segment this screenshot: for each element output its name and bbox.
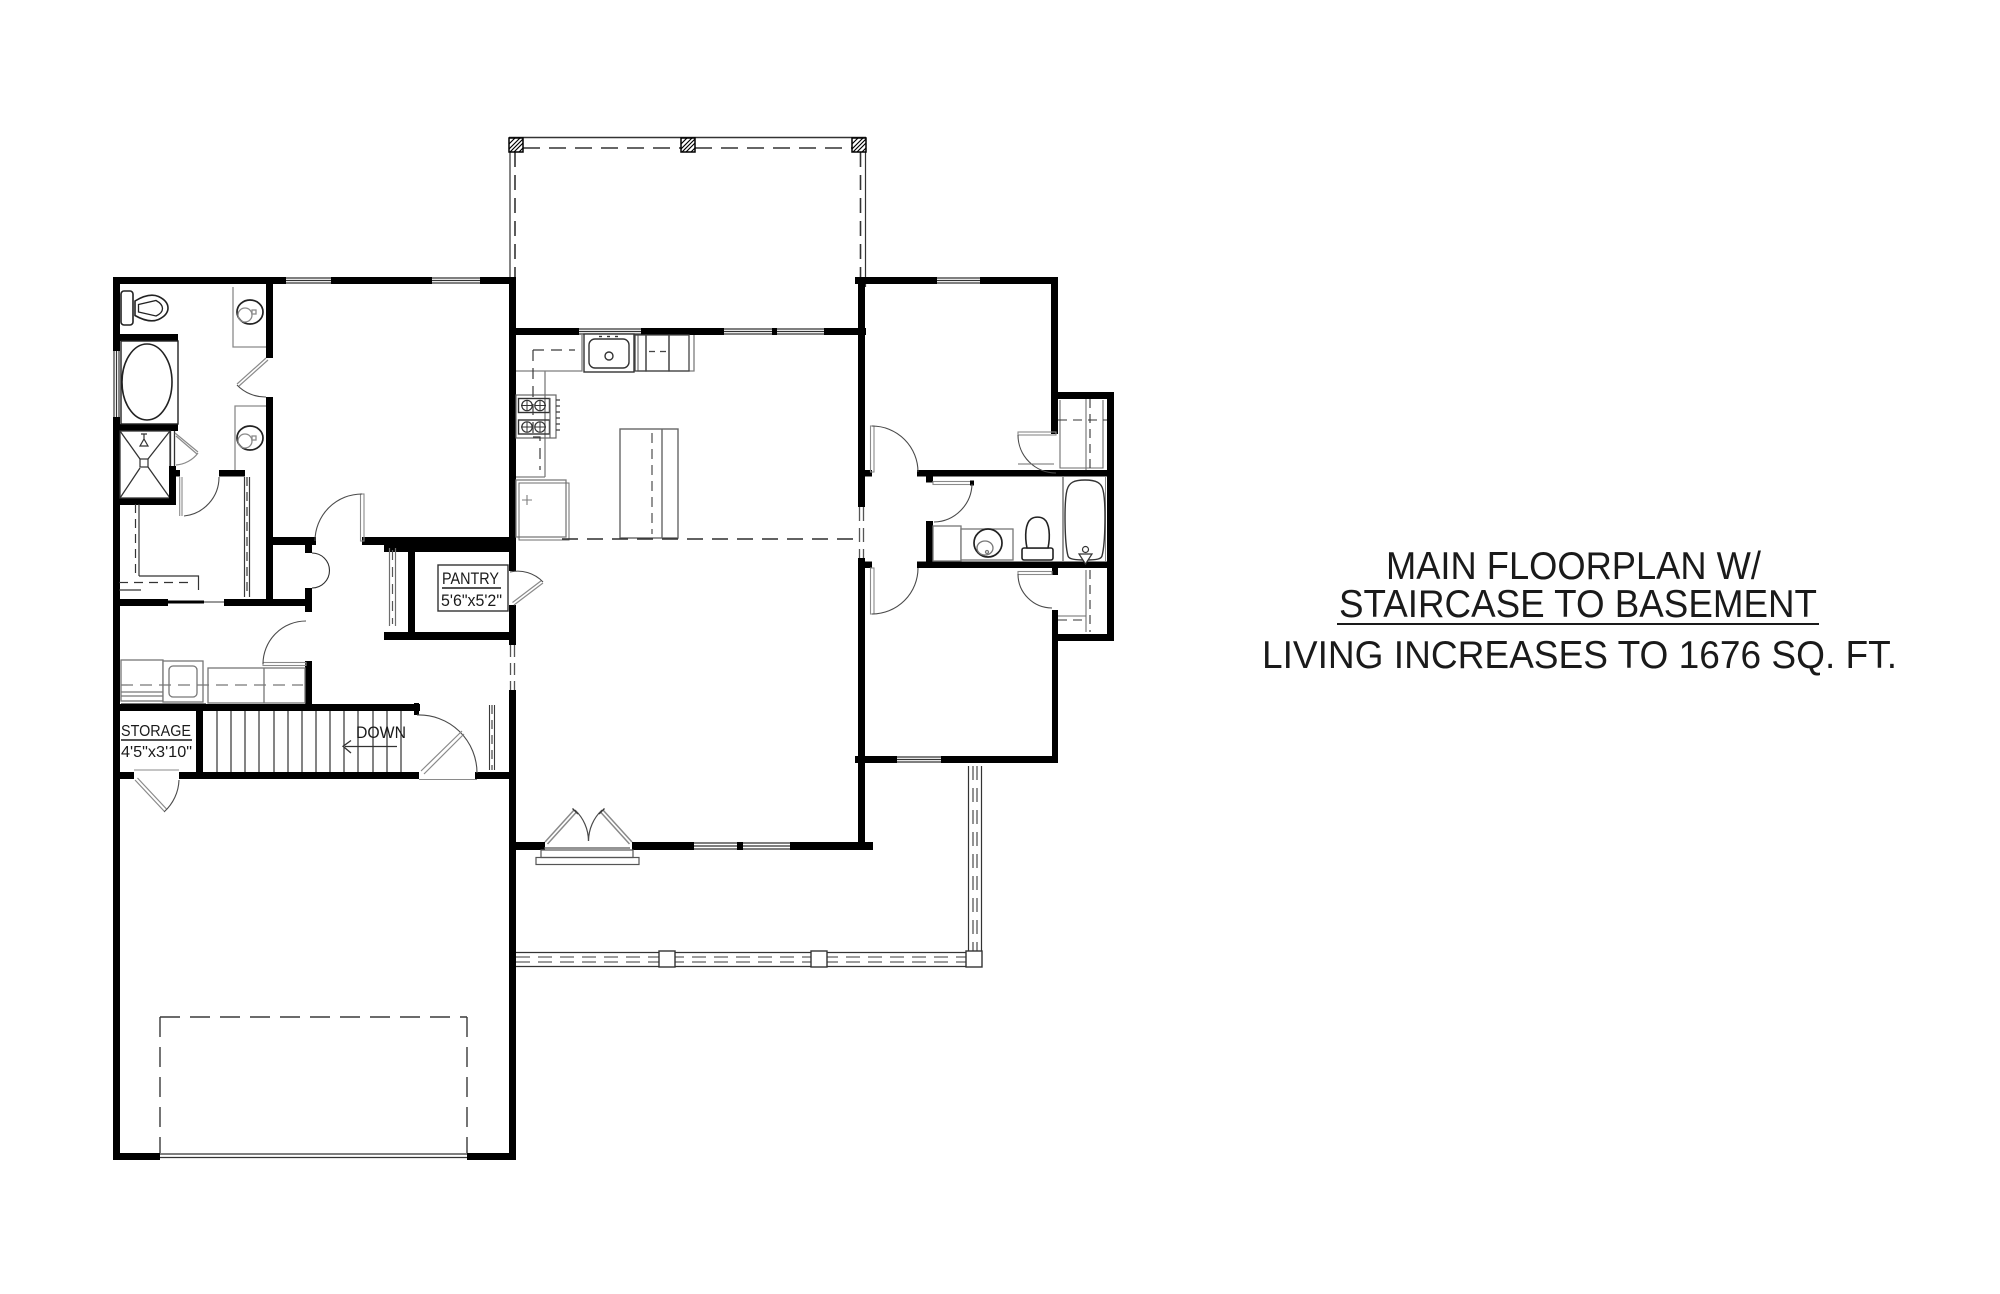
svg-text:5'6"x5'2": 5'6"x5'2" xyxy=(441,591,502,610)
svg-text:4'5"x3'10": 4'5"x3'10" xyxy=(121,744,192,761)
svg-text:DOWN: DOWN xyxy=(356,723,406,742)
svg-text:MAIN FLOORPLAN W/: MAIN FLOORPLAN W/ xyxy=(1386,545,1761,588)
svg-text:STORAGE: STORAGE xyxy=(121,723,191,740)
svg-text:PANTRY: PANTRY xyxy=(442,569,499,588)
svg-text:LIVING INCREASES TO 1676 SQ. F: LIVING INCREASES TO 1676 SQ. FT. xyxy=(1262,634,1897,677)
svg-text:STAIRCASE TO BASEMENT: STAIRCASE TO BASEMENT xyxy=(1339,583,1817,626)
